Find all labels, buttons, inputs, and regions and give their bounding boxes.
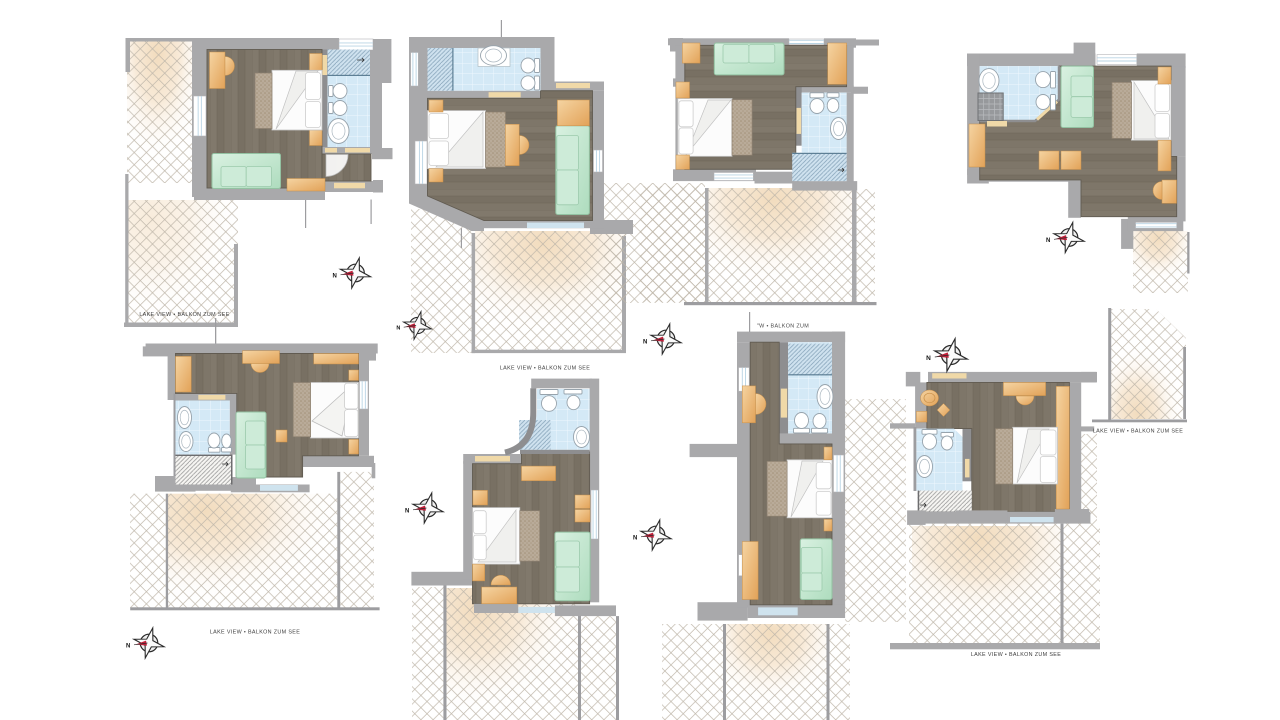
svg-text:LAKE VIEW • BALKON ZUM SEE: LAKE VIEW • BALKON ZUM SEE <box>1093 429 1183 435</box>
svg-text:LAKE VIEW • BALKON ZUM SEE: LAKE VIEW • BALKON ZUM SEE <box>500 366 590 372</box>
svg-text:LAKE VIEW • BALKON ZUM SEE: LAKE VIEW • BALKON ZUM SEE <box>210 630 300 636</box>
svg-text:LAKE VIEW • BALKON ZUM SEE: LAKE VIEW • BALKON ZUM SEE <box>139 312 229 318</box>
svg-text:"W • BALKON ZUM: "W • BALKON ZUM <box>757 324 809 330</box>
svg-text:LAKE VIEW • BALKON ZUM SEE: LAKE VIEW • BALKON ZUM SEE <box>971 652 1061 658</box>
